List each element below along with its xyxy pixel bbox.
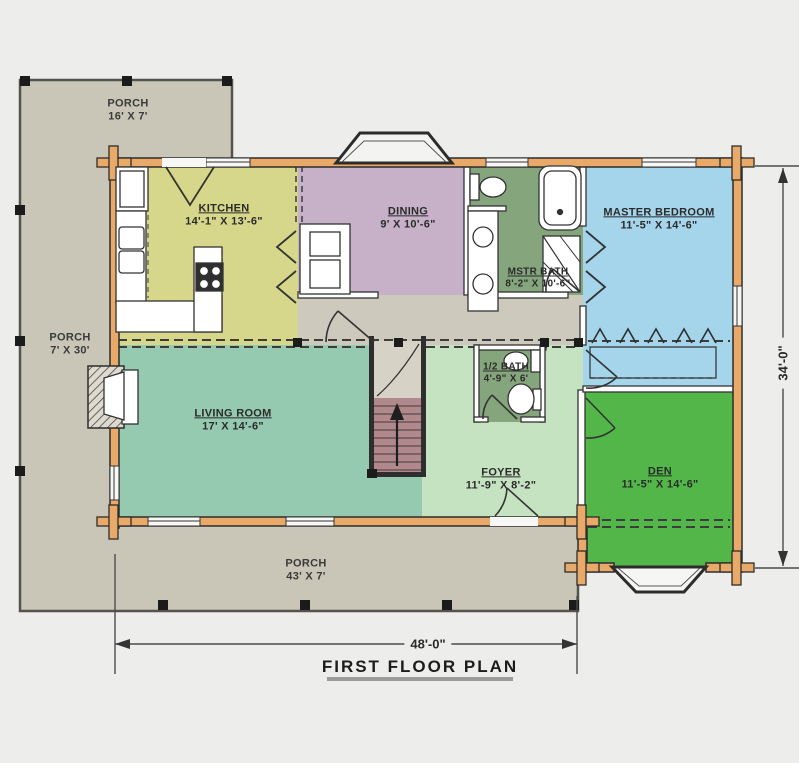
burner (200, 280, 209, 289)
height-dimension-label: 34'-0" (776, 337, 791, 388)
den-bay-window (612, 567, 706, 592)
porch-bottom-label: PORCH 43' X 7' (285, 557, 326, 582)
dining-bay-window (336, 133, 452, 163)
refrigerator (116, 167, 148, 211)
master-bedroom-area (583, 162, 738, 392)
sink (473, 274, 493, 294)
master-bedroom-label: MASTER BEDROOM 11'-5" X 14'-6" (603, 206, 714, 231)
kitchen-sink (119, 251, 144, 273)
porch-top-label: PORCH 16' X 7' (107, 97, 148, 122)
sink (473, 227, 493, 247)
stair-landing (374, 341, 421, 398)
vanity (468, 211, 498, 311)
toilet-bowl (480, 177, 506, 197)
stairwell (367, 336, 426, 478)
foyer-label: FOYER 11'-9" X 8'-2" (466, 466, 537, 491)
kitchen-label: KITCHEN 14'-1" X 13'-6" (185, 202, 263, 227)
dining-label: DINING 9' X 10'-6" (380, 205, 435, 230)
den-label: DEN 11'-5" X 14'-6" (621, 465, 698, 490)
title-underline (327, 677, 513, 681)
toilet-tank (470, 174, 479, 200)
living-room-label: LIVING ROOM 17' X 14'-6" (194, 407, 271, 432)
page-title: FIRST FLOOR PLAN (322, 657, 518, 677)
mstr-bath-label: MSTR BATH 8'-2" X 10'-6" (505, 267, 570, 290)
dining-buffet (300, 224, 350, 294)
width-dimension-label: 48'-0" (404, 637, 451, 652)
toilet-tank (531, 350, 540, 372)
kitchen-sink (119, 227, 144, 249)
porch-left-label: PORCH 7' X 30' (49, 331, 90, 356)
door-gap (490, 517, 538, 526)
pedestal-sink (508, 384, 534, 414)
fireplace (88, 366, 138, 428)
burner (200, 267, 209, 276)
floor-plan-canvas: PORCH 16' X 7' PORCH 7' X 30' PORCH 43' … (0, 0, 799, 763)
burner (212, 280, 221, 289)
burner (212, 267, 221, 276)
door-gap (162, 158, 206, 167)
half-bath-label: 1/2 BATH 4'-9" X 6' (483, 362, 529, 385)
